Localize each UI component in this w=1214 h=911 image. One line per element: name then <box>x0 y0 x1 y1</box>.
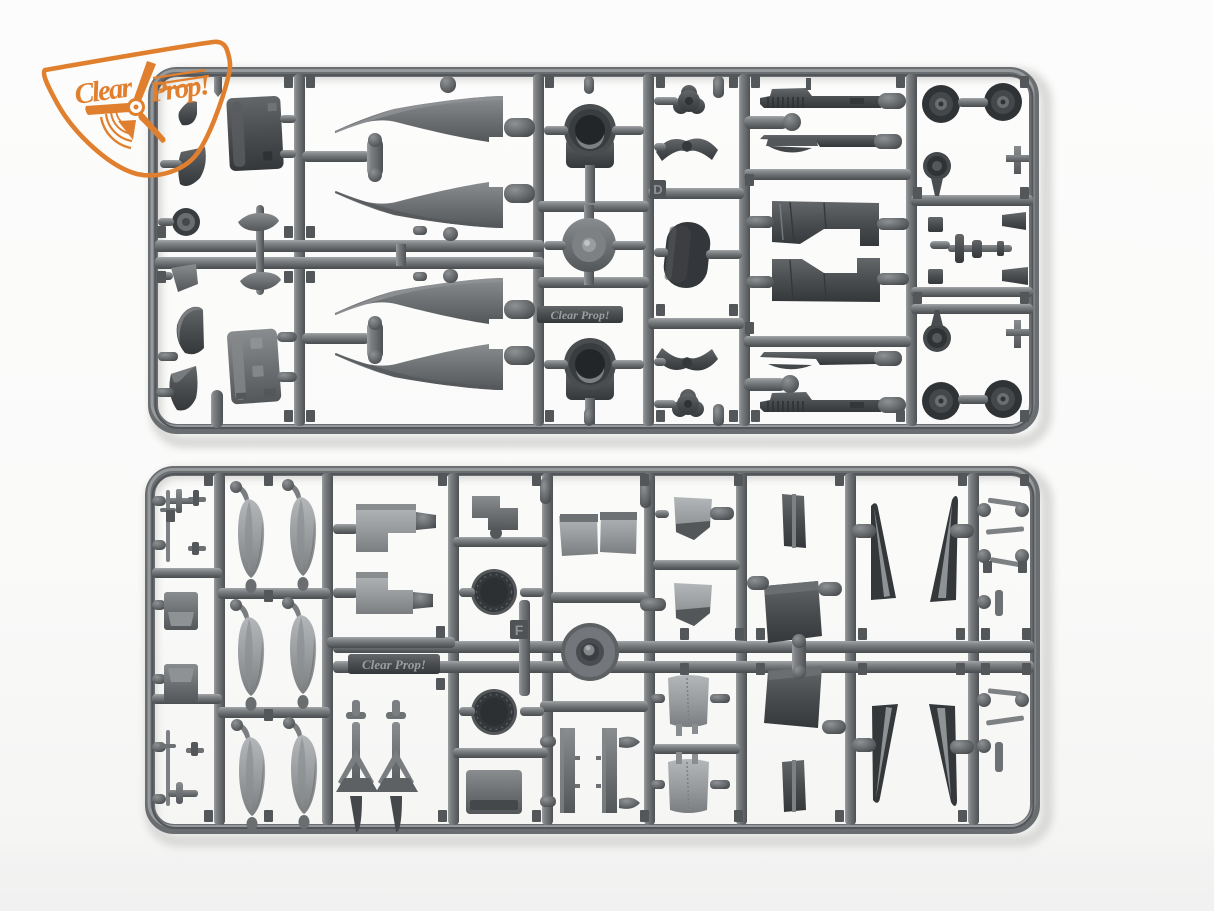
svg-text:Clear Prop!: Clear Prop! <box>550 308 609 322</box>
svg-text:Clear Prop!: Clear Prop! <box>362 657 426 672</box>
svg-text:D: D <box>653 182 662 197</box>
svg-text:F: F <box>515 622 524 638</box>
